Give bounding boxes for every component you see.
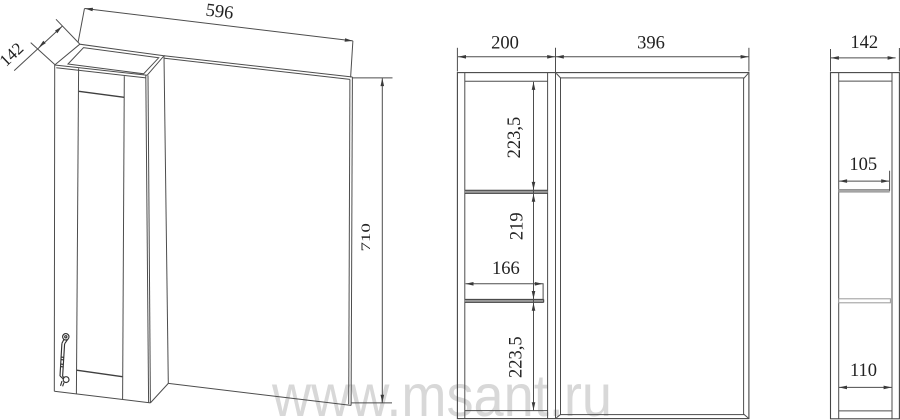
- svg-text:110: 110: [850, 361, 877, 381]
- svg-text:396: 396: [637, 34, 665, 54]
- svg-text:710: 710: [360, 223, 373, 251]
- svg-text:142: 142: [850, 33, 878, 53]
- svg-text:105: 105: [849, 155, 877, 175]
- svg-text:223,5: 223,5: [507, 336, 527, 378]
- svg-text:142: 142: [0, 39, 27, 70]
- svg-text:166: 166: [492, 259, 520, 279]
- svg-text:596: 596: [205, 1, 235, 24]
- svg-text:200: 200: [491, 34, 519, 54]
- svg-text:219: 219: [508, 212, 528, 240]
- svg-text:223,5: 223,5: [505, 117, 525, 159]
